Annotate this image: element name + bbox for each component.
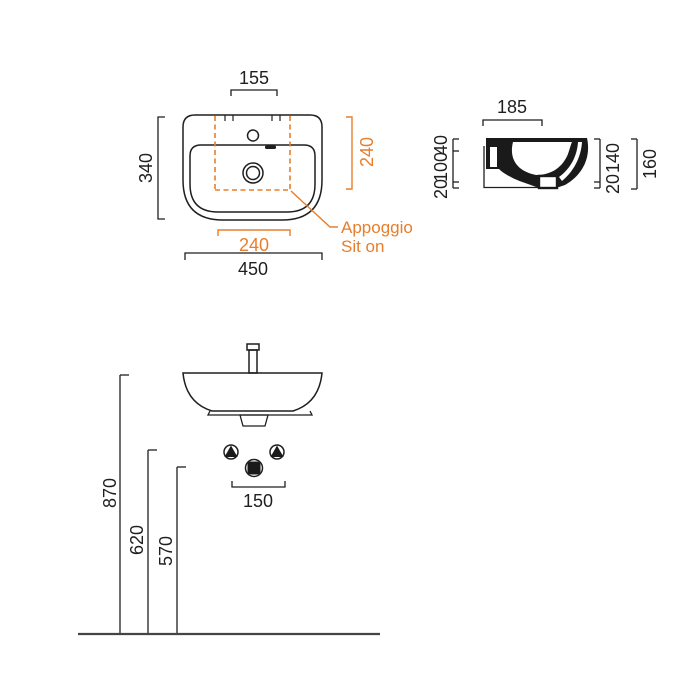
plan-inner-rim bbox=[190, 145, 315, 212]
dim-label-20-right: 20 bbox=[604, 174, 622, 194]
plan-drain-inner bbox=[247, 167, 260, 180]
dim-label-20-left: 20 bbox=[432, 179, 450, 199]
front-tap-body bbox=[249, 350, 257, 373]
dim-bracket-340 bbox=[158, 117, 165, 219]
section-drain-trap bbox=[539, 176, 557, 188]
dim-label-160: 160 bbox=[641, 149, 659, 179]
dim-bracket-240-right bbox=[346, 117, 352, 189]
dim-bracket-160 bbox=[631, 139, 637, 189]
height-line-570 bbox=[177, 467, 186, 634]
height-line-870 bbox=[120, 375, 129, 634]
sit-on-leader-line bbox=[291, 191, 338, 227]
dim-label-150: 150 bbox=[243, 492, 273, 510]
plan-tap-span-ticks bbox=[225, 115, 280, 121]
plan-overflow-slot bbox=[265, 146, 276, 150]
dim-label-620: 620 bbox=[128, 525, 146, 555]
supply-symbol-left bbox=[224, 445, 238, 459]
dim-label-100: 100 bbox=[432, 152, 450, 182]
drain-symbol bbox=[246, 460, 263, 477]
dim-label-570: 570 bbox=[157, 536, 175, 566]
dim-label-185: 185 bbox=[497, 98, 527, 116]
dim-label-870: 870 bbox=[101, 478, 119, 508]
dim-label-140: 140 bbox=[604, 143, 622, 173]
supply-symbol-right bbox=[270, 445, 284, 459]
sit-on-note-line2: Sit on bbox=[341, 238, 384, 257]
dim-stack-left bbox=[453, 139, 459, 188]
front-view bbox=[78, 344, 380, 634]
front-tap-cap bbox=[247, 344, 259, 350]
dim-bracket-185 bbox=[483, 120, 542, 126]
front-drain-flange bbox=[240, 415, 268, 426]
dim-bracket-155 bbox=[231, 90, 277, 96]
plan-tap-hole bbox=[248, 130, 259, 141]
dim-label-450: 450 bbox=[238, 260, 268, 278]
dim-label-240-siton-depth: 240 bbox=[358, 137, 376, 167]
dim-bracket-150 bbox=[232, 481, 285, 487]
dim-label-340: 340 bbox=[137, 153, 155, 183]
section-ceramic-profile bbox=[486, 138, 588, 188]
dim-stack-right-inner bbox=[594, 139, 600, 188]
technical-drawing-page: 155 340 240 240 450 Appoggio Sit on 185 … bbox=[0, 0, 700, 700]
dim-label-155: 155 bbox=[239, 69, 269, 87]
sit-on-note-line1: Appoggio bbox=[341, 219, 413, 238]
front-basin-outline bbox=[183, 373, 322, 411]
dim-label-240-siton-width: 240 bbox=[239, 236, 269, 254]
drawing-linework bbox=[0, 0, 700, 700]
